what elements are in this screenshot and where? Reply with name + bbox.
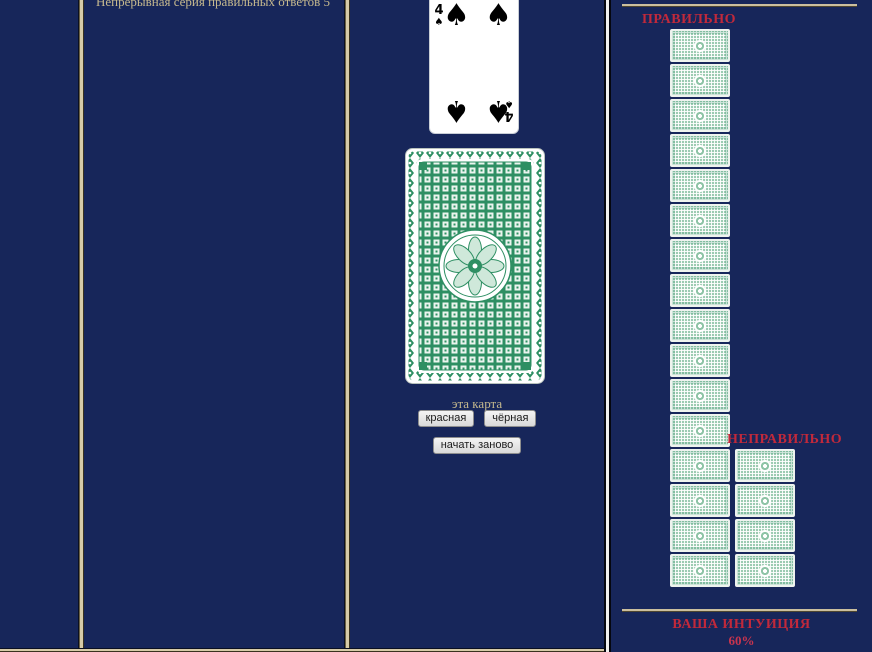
correct-cards-column: [670, 29, 730, 589]
card-back-mini: [735, 554, 795, 587]
card-back-mini: [735, 519, 795, 552]
streak-text: Непрерывная серия правильных ответов 5: [96, 0, 330, 10]
guess-buttons: красная чёрная: [350, 410, 604, 427]
frame-stats: Непрерывная серия правильных ответов 5: [84, 0, 344, 652]
frame-results: ПРАВИЛЬНО НЕПРАВИЛЬНО ВАША ИНТУИЦИЯ 60%: [611, 0, 872, 652]
card-back-mini: [670, 309, 730, 342]
restart-button[interactable]: начать заново: [433, 437, 522, 454]
card-back-mini: [735, 449, 795, 482]
card-back-mini: [670, 344, 730, 377]
card-back-mini: [670, 64, 730, 97]
card-back-mini: [670, 29, 730, 62]
spade-icon: ♠: [503, 98, 515, 108]
deck-card-back: [405, 148, 545, 384]
card-back-mini: [670, 449, 730, 482]
card-back-mini: [670, 519, 730, 552]
intuition-percentage: 60%: [611, 633, 872, 649]
revealed-card-4-of-spades: 4 ♠ ♠ ♠ ♠ ♠ 4 ♠: [429, 0, 519, 134]
spade-icon: ♠: [443, 1, 470, 31]
frame-left: [0, 0, 78, 652]
card-back-mini: [670, 169, 730, 202]
card-corner-index: 4 ♠: [503, 98, 515, 122]
correct-label: ПРАВИЛЬНО: [629, 12, 749, 28]
card-back-mini: [670, 554, 730, 587]
card-back-mini: [670, 99, 730, 132]
card-back-mini: [735, 484, 795, 517]
card-back-mini: [670, 484, 730, 517]
red-guess-button[interactable]: красная: [418, 410, 475, 427]
page: Непрерывная серия правильных ответов 5 4…: [0, 0, 872, 652]
bottom-frame-border: [0, 648, 604, 652]
black-guess-button[interactable]: чёрная: [484, 410, 536, 427]
card-back-mini: [670, 379, 730, 412]
card-back-mini: [670, 134, 730, 167]
bottom-divider: [622, 609, 857, 612]
card-back-mini: [670, 414, 730, 447]
incorrect-label: НЕПРАВИЛЬНО: [727, 432, 837, 448]
intuition-label: ВАША ИНТУИЦИЯ: [611, 617, 872, 633]
spade-icon: ♠: [485, 1, 512, 31]
card-back-mini: [670, 274, 730, 307]
incorrect-cards-column: [735, 449, 795, 589]
card-back-mini: [670, 239, 730, 272]
card-back-mini: [670, 204, 730, 237]
top-divider: [622, 4, 857, 7]
frame-border-right: [604, 0, 611, 652]
restart-row: начать заново: [350, 437, 604, 454]
frame-game: 4 ♠ ♠ ♠ ♠ ♠ 4 ♠: [350, 0, 604, 652]
spade-icon: ♠: [443, 95, 470, 125]
card-rank: 4: [504, 108, 513, 123]
